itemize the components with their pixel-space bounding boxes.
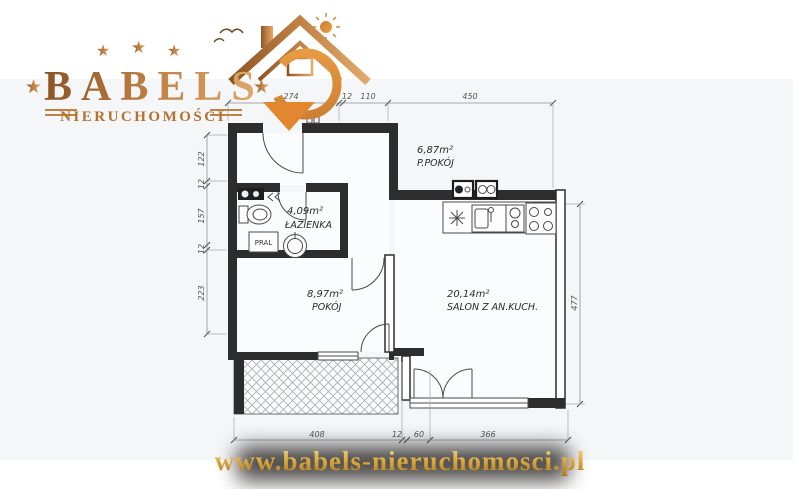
real-estate-flyer: PRAL — [0, 0, 800, 489]
livingroom-bottom-wall — [528, 398, 565, 408]
dim-top-450: 450 — [462, 92, 477, 101]
hall-floor — [237, 133, 389, 185]
bird-icon — [214, 39, 224, 42]
balcony-hatch — [234, 358, 398, 414]
birds-icon — [220, 29, 243, 33]
brand-name: BABELS — [44, 64, 264, 110]
bathroom-right-wall — [340, 183, 348, 258]
dim-top-110: 110 — [360, 92, 375, 101]
balcony-left-wall — [234, 358, 244, 414]
dim-right-477: 477 — [570, 294, 579, 310]
sun-icon — [320, 21, 332, 33]
dim-top-274: 274 — [283, 92, 298, 101]
brand-text: ★ ★ ★ ★ ★ BABELS NIERUCHOMOŚCI — [25, 38, 270, 129]
dim-left-12a: 12 — [197, 179, 206, 189]
small-room-floor — [237, 258, 385, 352]
washer-label: PRAL — [255, 239, 273, 247]
vent-box-dial-1 — [242, 191, 249, 198]
dim-bottom-408: 408 — [309, 430, 324, 439]
floor-plan: PRAL — [197, 92, 585, 443]
bathroom-name: ŁAZIENKA — [284, 220, 332, 231]
balcony — [234, 358, 398, 414]
dim-left-223: 223 — [197, 285, 206, 300]
star-icon-2: ★ — [131, 38, 146, 58]
top-wall-right — [302, 123, 398, 133]
nook-wall-h — [394, 348, 424, 356]
room-bottom-wall — [228, 352, 318, 360]
vent-box-dial-2 — [253, 191, 259, 197]
appliance-1-dial — [455, 186, 463, 194]
livingroom-area: 20,14m² — [447, 289, 489, 300]
room-area: 8,97m² — [307, 289, 343, 300]
dim-left-157: 157 — [197, 207, 206, 223]
livingroom-name: SALON Z AN.KUCH. — [447, 302, 538, 313]
room-name: POKÓJ — [312, 301, 342, 313]
dim-top-12: 12 — [342, 92, 352, 101]
brand-logo: ★ ★ ★ ★ ★ BABELS NIERUCHOMOŚCI — [25, 13, 368, 131]
hall-area: 6,87m² — [417, 145, 453, 156]
floorplan-scene: PRAL — [0, 0, 800, 489]
website-url: www.babels-nieruchomosci.pl — [0, 446, 800, 477]
lamp-symbol-icon — [449, 210, 465, 226]
kitchen-fixtures — [443, 181, 556, 234]
right-outer-wall — [556, 190, 565, 408]
star-icon-left: ★ — [25, 76, 42, 98]
room-bottom-corner — [389, 352, 394, 360]
brand-subtitle: NIERUCHOMOŚCI — [60, 108, 226, 125]
dim-bottom-60: 60 — [414, 430, 424, 439]
corridor-floor — [348, 183, 389, 258]
dim-left-12b: 12 — [197, 244, 206, 254]
step-wall — [389, 123, 398, 196]
nook-wall-v — [402, 356, 410, 400]
bathroom-area: 4,09m² — [287, 206, 323, 217]
hall-name: P.POKÓJ — [417, 157, 454, 169]
star-icon-1: ★ — [96, 41, 110, 60]
star-icon-3: ★ — [167, 41, 181, 60]
dim-left-122: 122 — [197, 151, 206, 166]
left-outer-wall — [228, 123, 237, 360]
dim-bottom-12: 12 — [392, 430, 402, 439]
dim-bottom-366: 366 — [480, 430, 495, 439]
